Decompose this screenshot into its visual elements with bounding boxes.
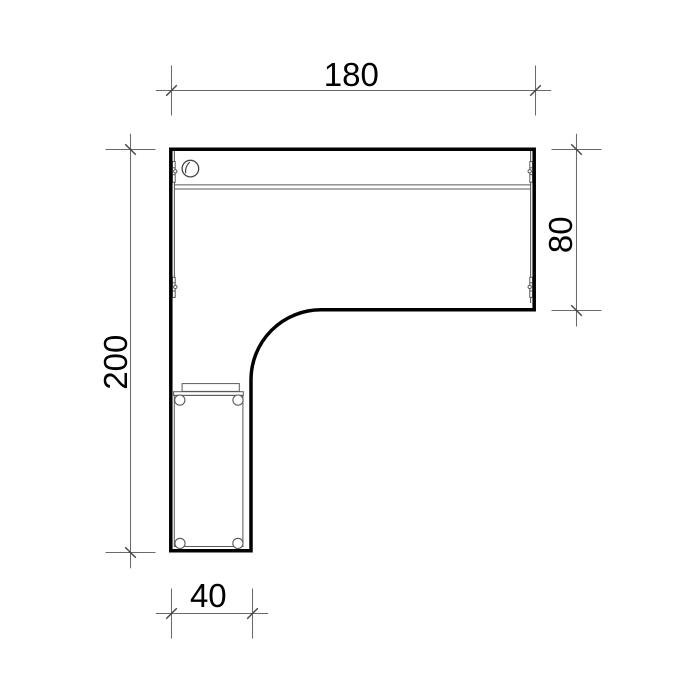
svg-text:40: 40 bbox=[190, 577, 227, 614]
svg-text:200: 200 bbox=[97, 335, 134, 390]
svg-text:180: 180 bbox=[324, 56, 379, 93]
svg-text:80: 80 bbox=[542, 216, 579, 253]
